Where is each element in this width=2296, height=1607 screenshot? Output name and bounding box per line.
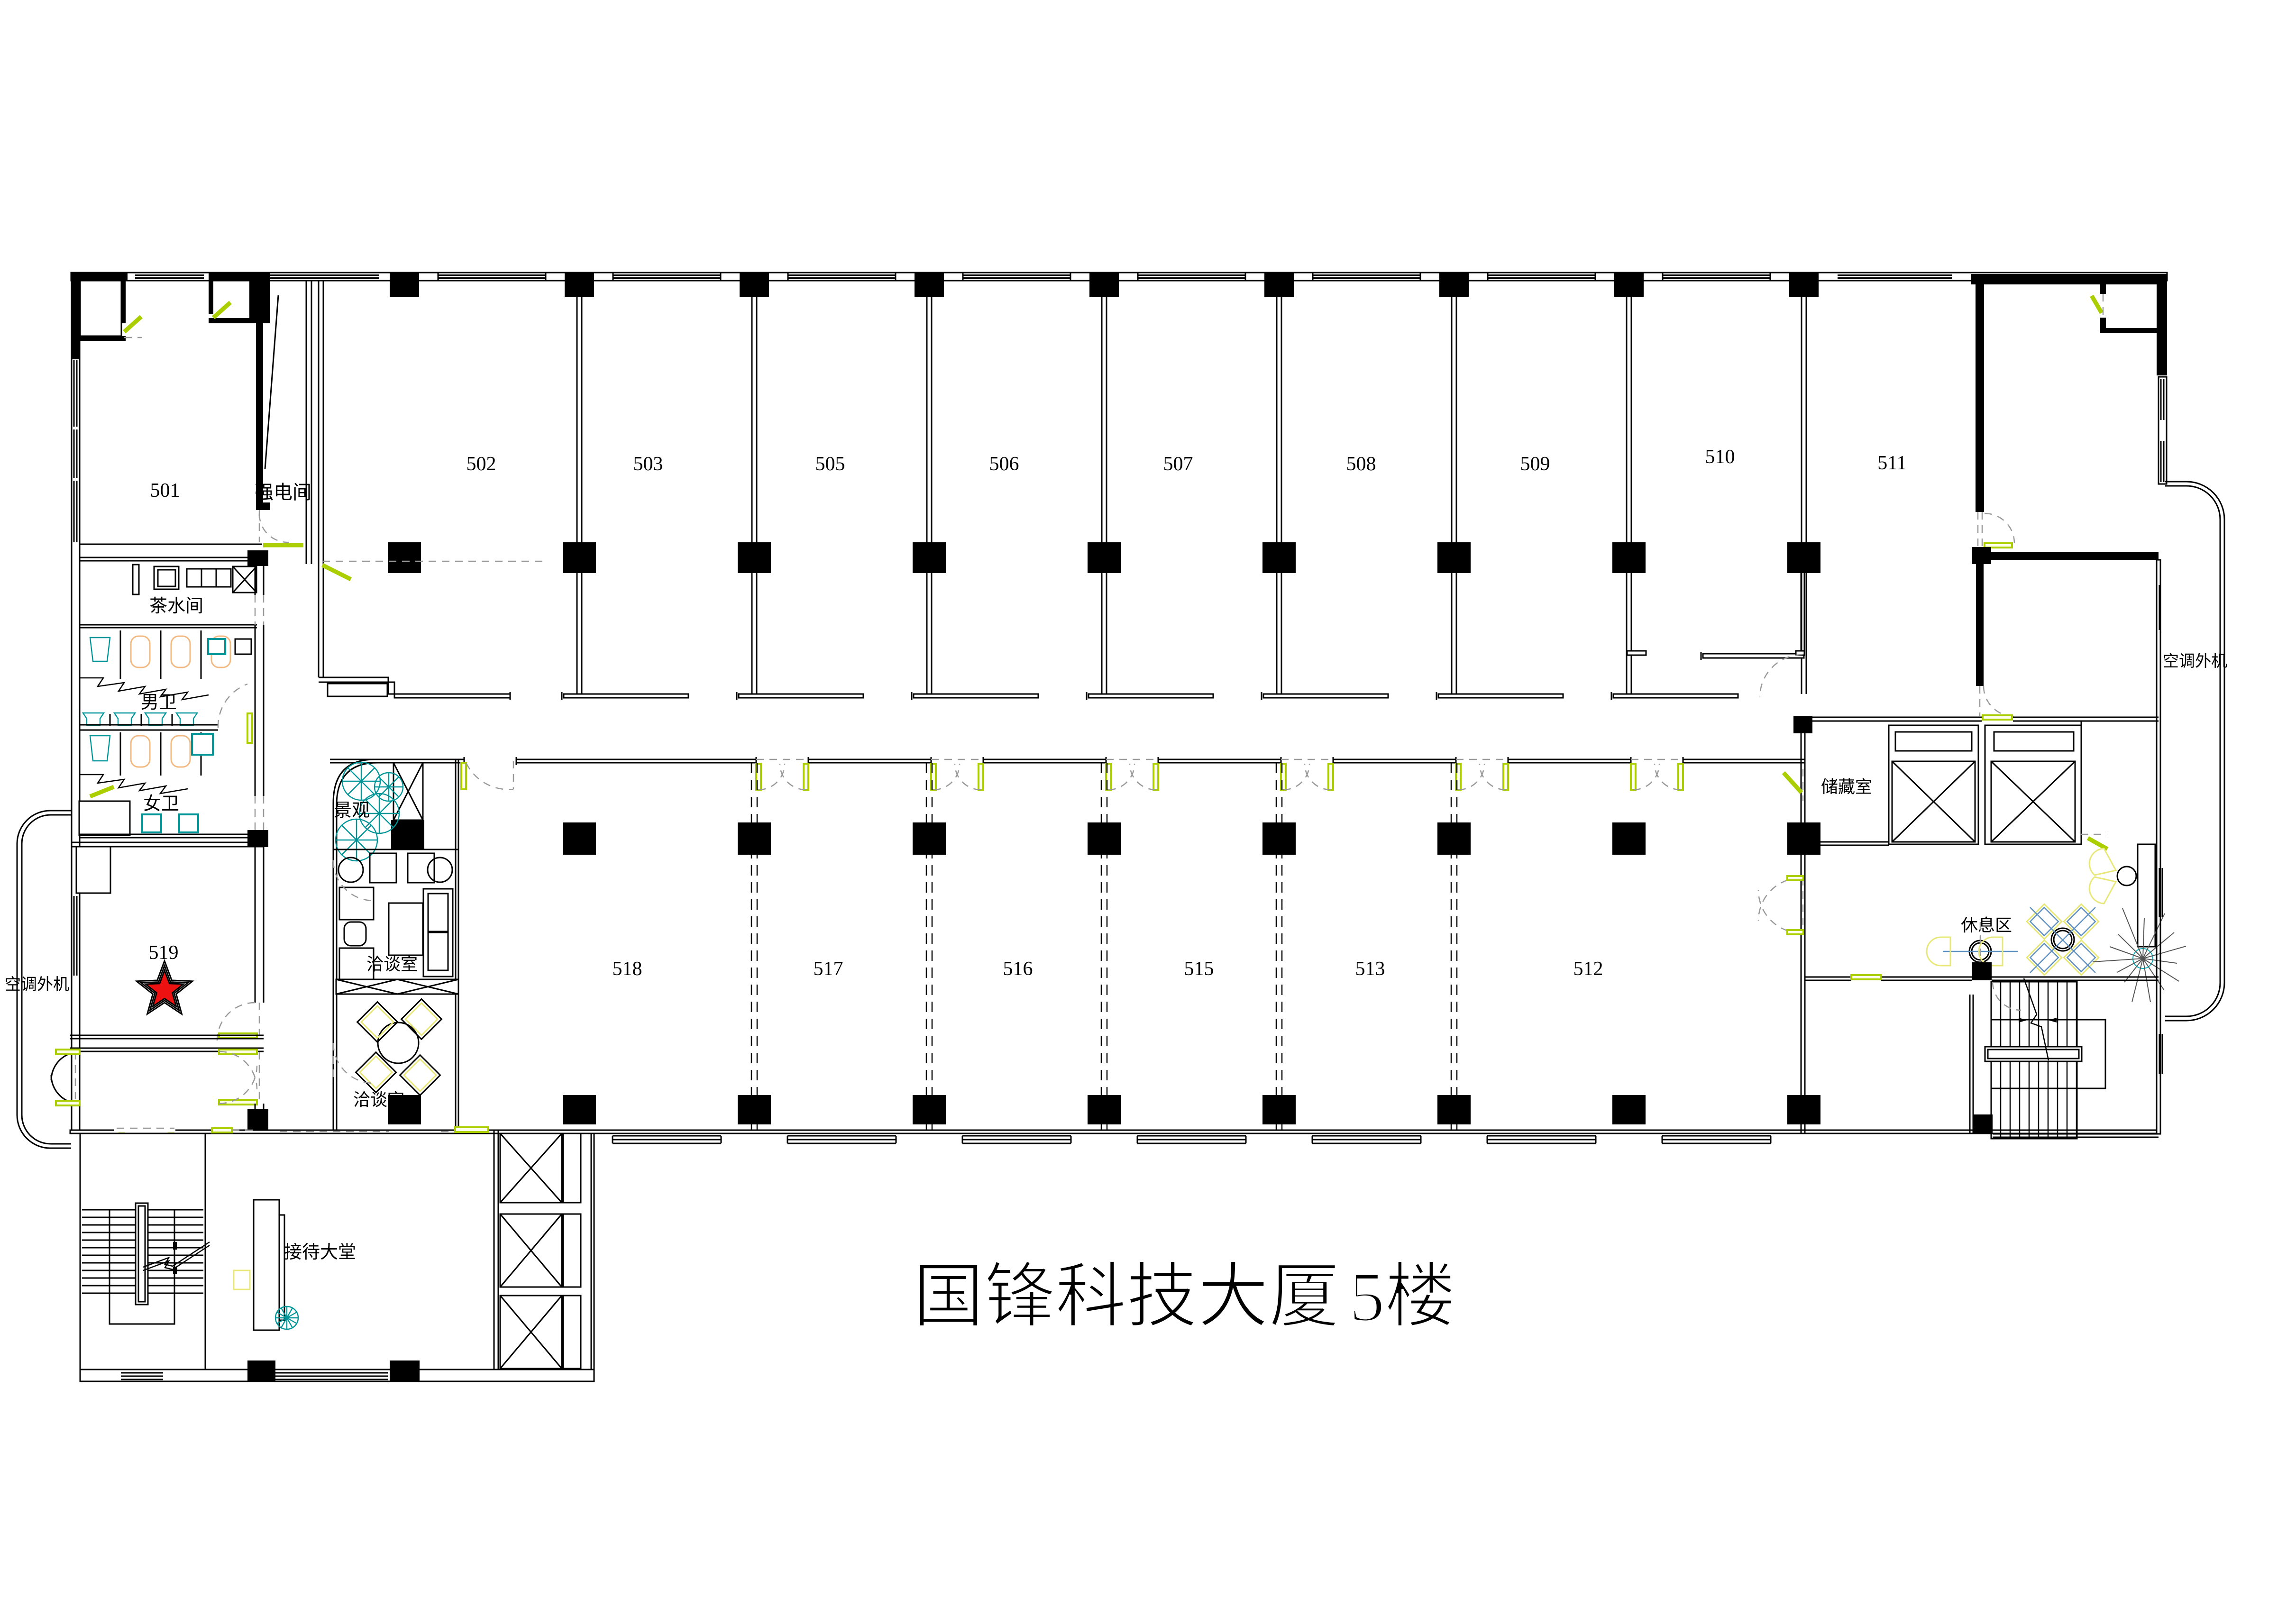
svg-text:5楼: 5楼 — [1349, 1258, 1456, 1336]
svg-text:休息区: 休息区 — [1961, 916, 2012, 935]
svg-text:512: 512 — [1573, 958, 1603, 980]
svg-text:502: 502 — [467, 453, 496, 475]
svg-text:501: 501 — [150, 480, 180, 502]
svg-text:519: 519 — [149, 942, 179, 964]
svg-text:景观: 景观 — [334, 801, 370, 821]
svg-text:女卫: 女卫 — [143, 794, 179, 814]
svg-text:516: 516 — [1003, 958, 1033, 980]
svg-text:515: 515 — [1184, 958, 1214, 980]
svg-text:空调外机: 空调外机 — [5, 976, 69, 994]
svg-text:518: 518 — [613, 958, 642, 980]
svg-text:511: 511 — [1877, 452, 1906, 474]
svg-text:505: 505 — [815, 453, 845, 475]
svg-text:509: 509 — [1520, 453, 1550, 475]
svg-text:507: 507 — [1163, 453, 1193, 475]
svg-text:510: 510 — [1705, 446, 1735, 468]
svg-text:508: 508 — [1346, 453, 1376, 475]
svg-text:接待大堂: 接待大堂 — [284, 1242, 356, 1262]
svg-text:国锋科技大厦: 国锋科技大厦 — [913, 1258, 1340, 1336]
svg-text:强电间: 强电间 — [255, 482, 311, 503]
svg-text:513: 513 — [1355, 958, 1385, 980]
svg-text:茶水间: 茶水间 — [149, 596, 203, 616]
svg-text:洽谈室: 洽谈室 — [366, 955, 418, 974]
svg-text:男卫: 男卫 — [141, 693, 177, 712]
svg-text:517: 517 — [814, 958, 843, 980]
svg-text:506: 506 — [989, 453, 1019, 475]
svg-text:503: 503 — [633, 453, 663, 475]
svg-text:储藏室: 储藏室 — [1821, 777, 1872, 796]
svg-text:空调外机: 空调外机 — [2163, 652, 2227, 670]
